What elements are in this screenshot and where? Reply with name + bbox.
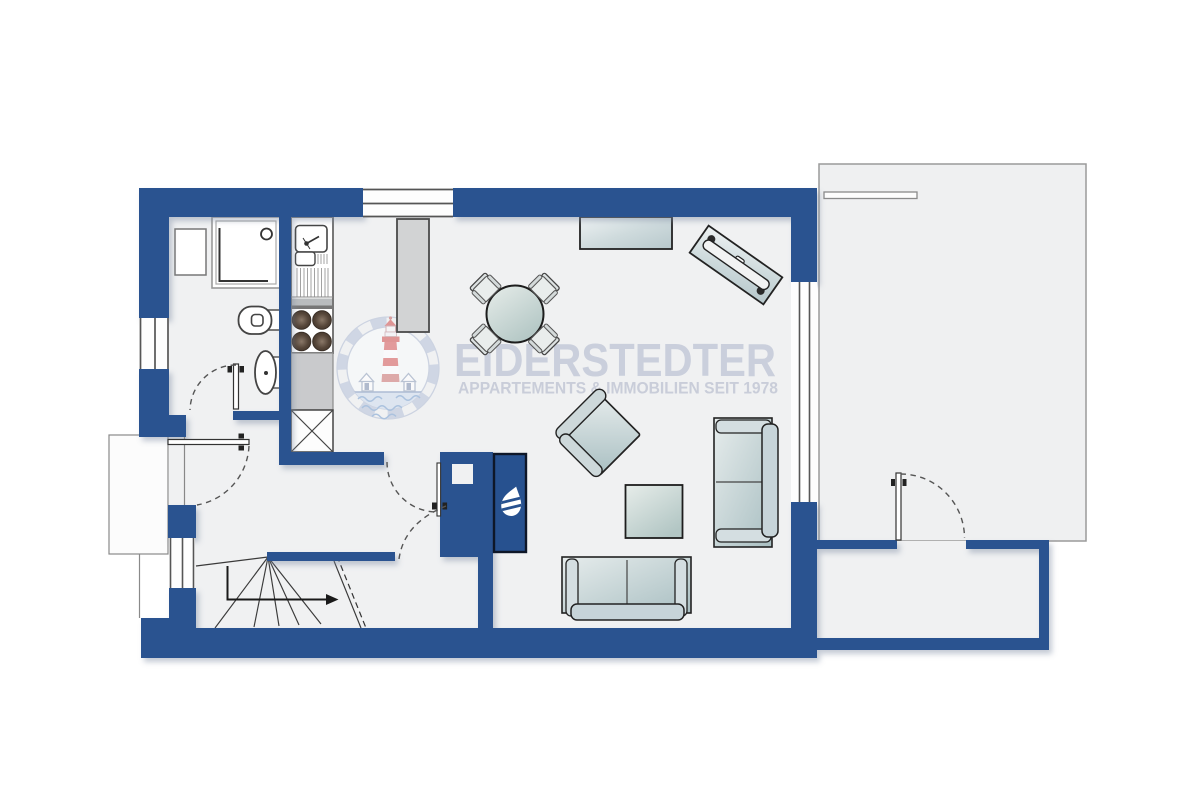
svg-text:APPARTEMENTS & IMMOBILIEN SEIT: APPARTEMENTS & IMMOBILIEN SEIT 1978: [458, 380, 778, 398]
svg-text:EIDERSTEDTER: EIDERSTEDTER: [454, 334, 776, 386]
